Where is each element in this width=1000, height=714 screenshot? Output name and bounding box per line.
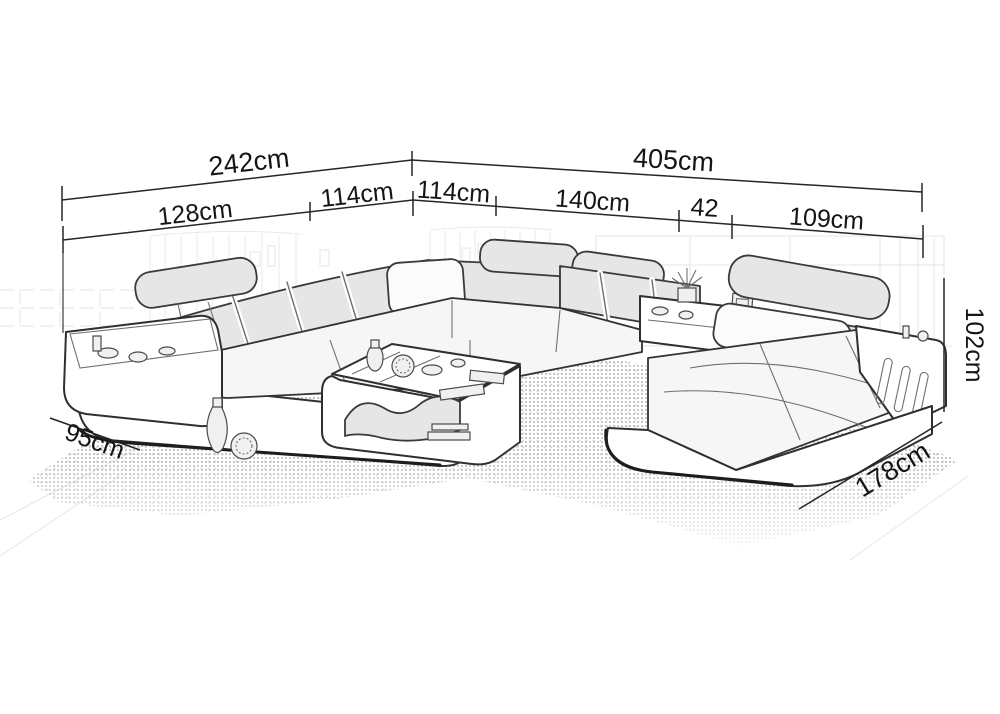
label-seg-114-right: 114cm [416, 176, 491, 209]
label-seg-128: 128cm [156, 195, 234, 231]
label-total-right: 405cm [632, 143, 715, 178]
label-seg-140: 140cm [554, 184, 631, 217]
dim-line-totals [62, 160, 922, 200]
label-seg-42: 42 [690, 193, 720, 223]
sofa-sketch-canvas: 242cm 405cm 128cm 114cm 114cm 140cm 42 1… [0, 0, 1000, 714]
table-shelf-books [428, 424, 470, 440]
label-seg-114-left: 114cm [319, 177, 395, 213]
label-height-102: 102cm [960, 307, 988, 382]
label-seg-109: 109cm [788, 202, 865, 235]
dimension-diagram: 242cm 405cm 128cm 114cm 114cm 140cm 42 1… [0, 0, 1000, 714]
